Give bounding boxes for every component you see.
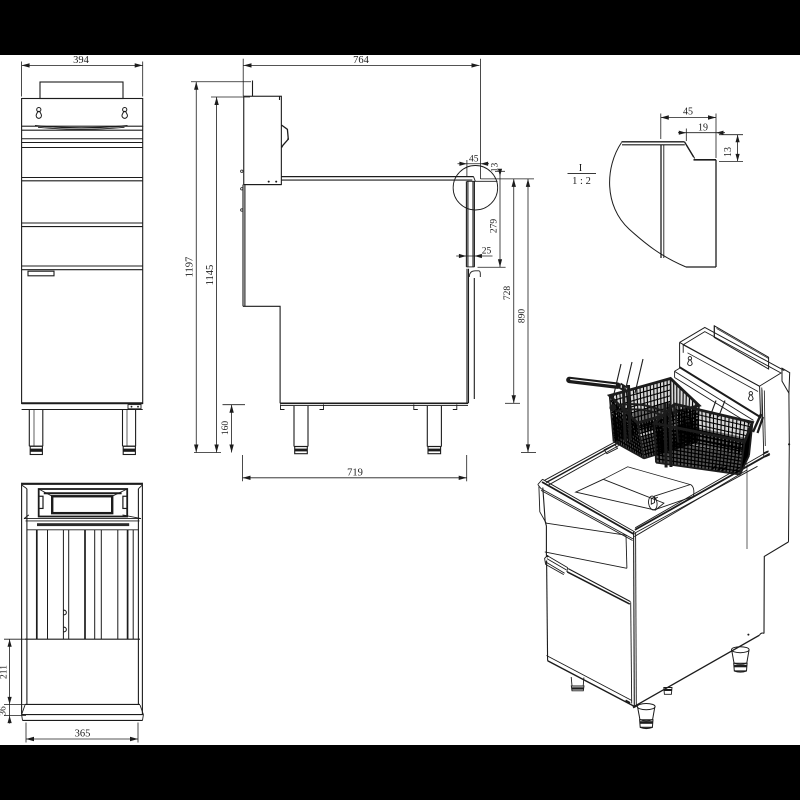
svg-text:I: I	[579, 163, 583, 174]
svg-text:1 : 2: 1 : 2	[572, 176, 591, 187]
svg-text:1145: 1145	[205, 265, 216, 286]
svg-text:279: 279	[490, 219, 500, 234]
svg-text:25: 25	[482, 247, 492, 257]
svg-text:728: 728	[503, 286, 513, 301]
svg-text:160: 160	[221, 421, 231, 436]
svg-text:890: 890	[518, 309, 528, 324]
svg-text:45: 45	[469, 155, 479, 165]
svg-text:36: 36	[0, 706, 9, 716]
svg-text:1197: 1197	[185, 257, 196, 278]
svg-text:13: 13	[491, 163, 501, 173]
svg-text:394: 394	[73, 55, 90, 66]
svg-text:764: 764	[353, 55, 370, 66]
svg-text:45: 45	[683, 107, 693, 118]
svg-text:19: 19	[698, 122, 708, 133]
svg-text:13: 13	[723, 147, 734, 157]
svg-text:365: 365	[75, 729, 91, 740]
svg-text:211: 211	[0, 665, 10, 679]
svg-text:719: 719	[347, 467, 363, 478]
